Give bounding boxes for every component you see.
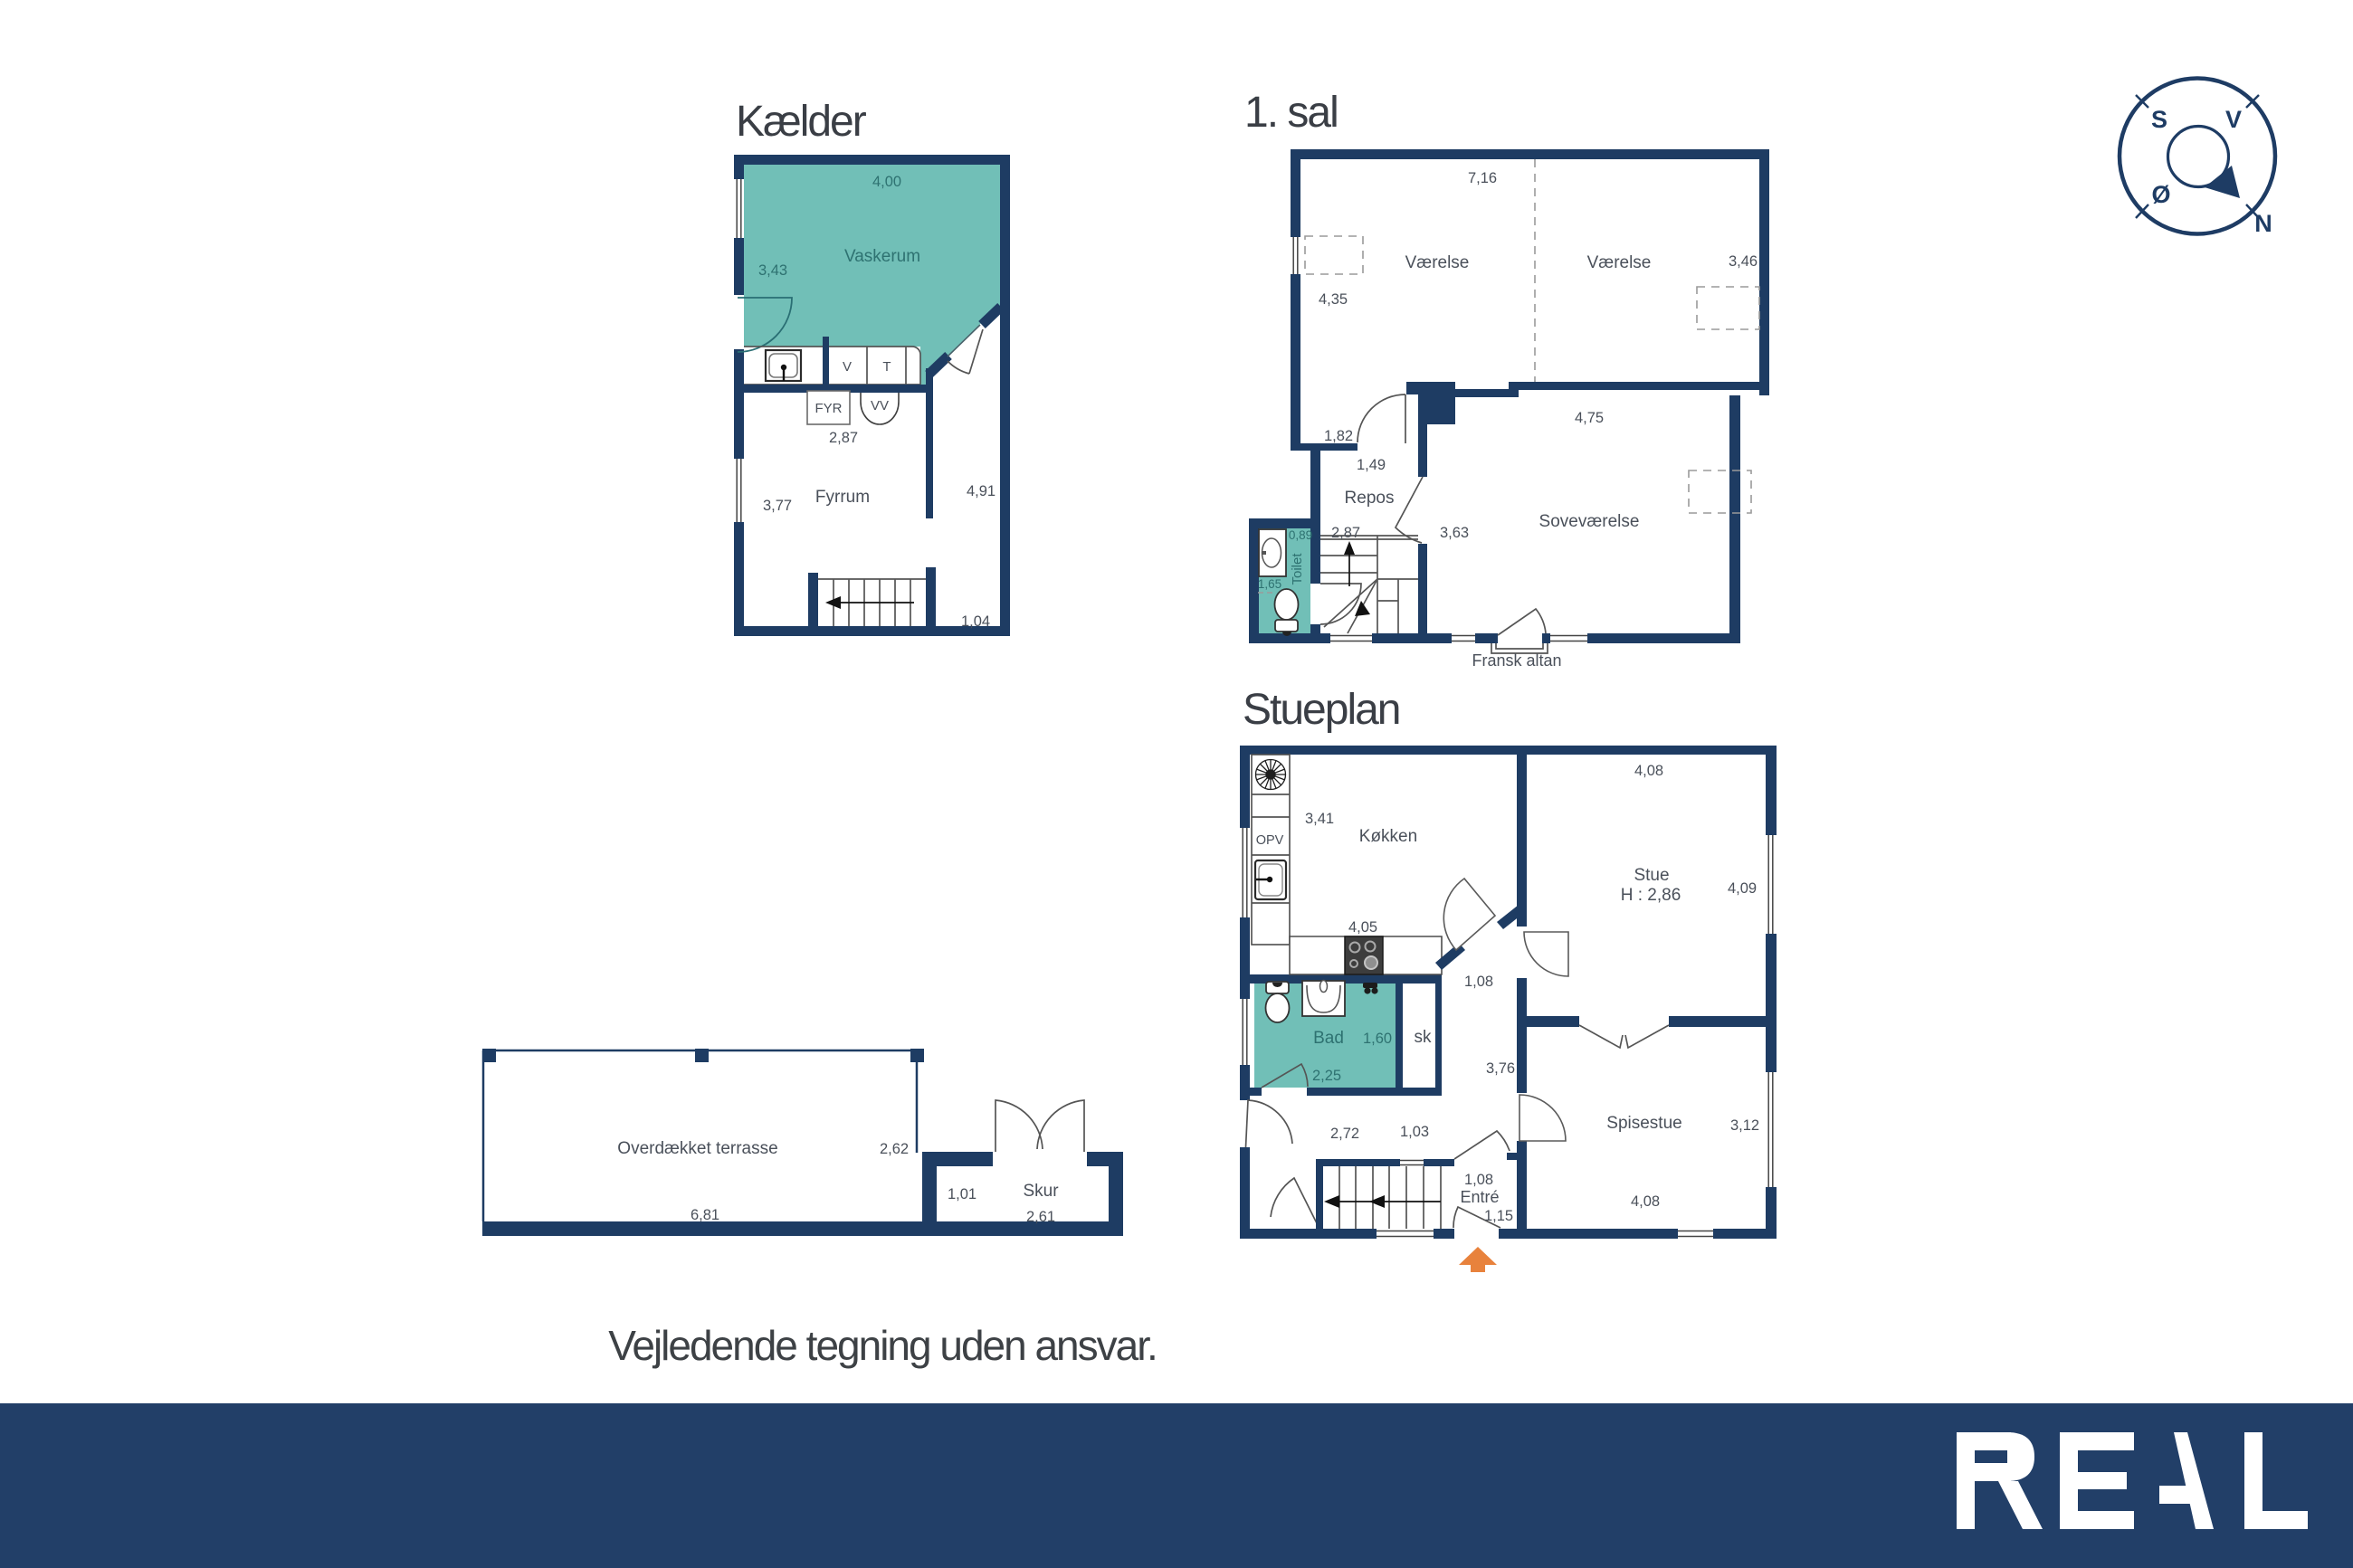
svg-text:Repos: Repos <box>1345 489 1395 508</box>
svg-text:1,01: 1,01 <box>948 1186 976 1202</box>
svg-text:Køkken: Køkken <box>1359 827 1417 846</box>
svg-text:2,25: 2,25 <box>1312 1068 1341 1084</box>
svg-text:Fyrrum: Fyrrum <box>815 488 870 507</box>
svg-text:T: T <box>882 359 891 375</box>
svg-text:V: V <box>2225 106 2242 133</box>
svg-text:1,03: 1,03 <box>1400 1124 1429 1140</box>
svg-text:1,04: 1,04 <box>961 613 990 630</box>
svg-text:Entré: Entré <box>1460 1188 1499 1206</box>
svg-text:Ø: Ø <box>2151 181 2170 208</box>
svg-text:2,87: 2,87 <box>829 430 858 446</box>
svg-text:Kælder: Kælder <box>736 98 867 146</box>
svg-text:Vejledende tegning uden ansvar: Vejledende tegning uden ansvar. <box>608 1322 1157 1369</box>
svg-text:N: N <box>2254 210 2272 237</box>
svg-text:Toilet: Toilet <box>1290 553 1305 585</box>
svg-text:2,61: 2,61 <box>1026 1209 1055 1225</box>
svg-text:Vaskerum: Vaskerum <box>844 247 920 266</box>
svg-text:4,91: 4,91 <box>967 483 995 499</box>
svg-text:Fransk altan: Fransk altan <box>1472 651 1561 670</box>
svg-text:Værelse: Værelse <box>1405 253 1470 272</box>
svg-text:3,46: 3,46 <box>1729 253 1758 270</box>
svg-text:V: V <box>843 359 852 375</box>
svg-text:3,41: 3,41 <box>1305 811 1334 827</box>
svg-text:1,65: 1,65 <box>1258 577 1281 591</box>
svg-text:4,35: 4,35 <box>1319 291 1348 308</box>
svg-text:0,89: 0,89 <box>1289 528 1312 542</box>
svg-text:1,82: 1,82 <box>1324 428 1353 444</box>
svg-text:3,43: 3,43 <box>758 262 787 279</box>
svg-text:1,49: 1,49 <box>1357 457 1386 473</box>
svg-text:3,76: 3,76 <box>1486 1060 1515 1077</box>
svg-text:7,16: 7,16 <box>1468 170 1497 186</box>
svg-text:sk: sk <box>1415 1028 1433 1047</box>
svg-text:H : 2,86: H : 2,86 <box>1621 886 1681 905</box>
svg-text:4,05: 4,05 <box>1348 919 1377 936</box>
svg-text:2,72: 2,72 <box>1330 1126 1359 1142</box>
svg-text:6,81: 6,81 <box>691 1207 719 1223</box>
svg-text:1,60: 1,60 <box>1363 1031 1392 1047</box>
svg-text:1,08: 1,08 <box>1464 1172 1493 1188</box>
svg-text:1,15: 1,15 <box>1484 1208 1513 1224</box>
svg-text:4,00: 4,00 <box>872 174 901 190</box>
svg-text:Soveværelse: Soveværelse <box>1539 512 1640 531</box>
svg-text:4,08: 4,08 <box>1634 763 1663 779</box>
svg-text:Skur: Skur <box>1023 1182 1059 1201</box>
svg-text:3,77: 3,77 <box>763 498 792 514</box>
svg-text:1. sal: 1. sal <box>1244 89 1338 137</box>
svg-text:Værelse: Værelse <box>1587 253 1652 272</box>
svg-text:OPV: OPV <box>1256 833 1284 848</box>
svg-text:1,08: 1,08 <box>1464 974 1493 990</box>
svg-text:VV: VV <box>871 398 889 413</box>
svg-text:Overdækket terrasse: Overdækket terrasse <box>617 1139 777 1158</box>
svg-text:Stueplan: Stueplan <box>1243 686 1400 734</box>
svg-text:FYR: FYR <box>815 401 843 416</box>
svg-text:Bad: Bad <box>1313 1029 1344 1048</box>
svg-text:Spisestue: Spisestue <box>1606 1114 1681 1133</box>
svg-text:3,63: 3,63 <box>1440 525 1469 541</box>
svg-text:4,09: 4,09 <box>1728 880 1757 897</box>
svg-text:3,12: 3,12 <box>1730 1117 1759 1134</box>
svg-text:4,75: 4,75 <box>1575 410 1604 426</box>
svg-text:Stue: Stue <box>1634 866 1669 885</box>
svg-text:2,62: 2,62 <box>880 1141 909 1157</box>
svg-text:4,08: 4,08 <box>1631 1193 1660 1210</box>
svg-text:S: S <box>2151 106 2167 133</box>
svg-text:2,87: 2,87 <box>1331 525 1360 541</box>
